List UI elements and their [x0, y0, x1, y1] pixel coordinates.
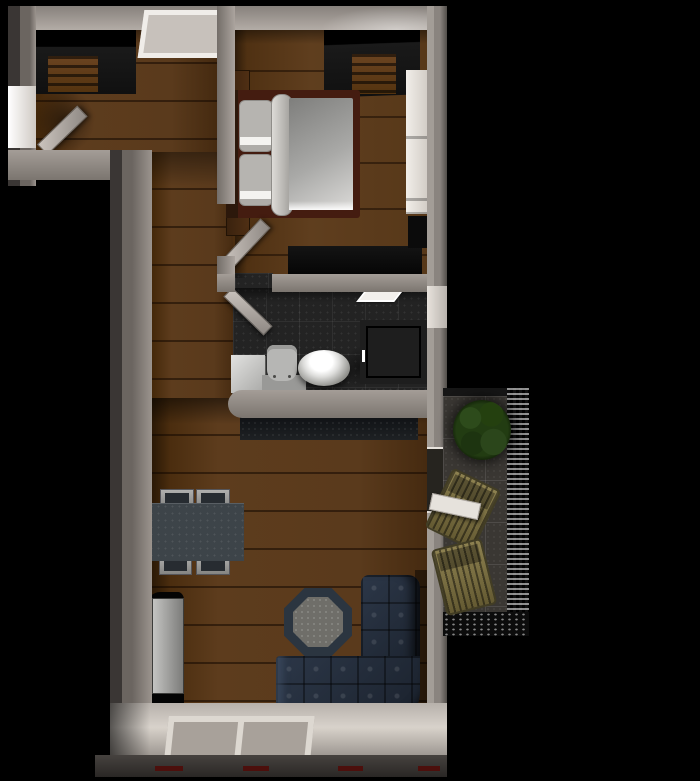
floorplan-render — [0, 0, 700, 781]
double-bed — [226, 90, 360, 218]
decor-dash — [243, 766, 269, 771]
bed-duvet — [289, 98, 353, 210]
window-icon — [8, 86, 36, 148]
shower-handle — [362, 350, 365, 362]
decor-dash — [338, 766, 363, 771]
decor-dash — [418, 766, 440, 771]
shower-cabin — [360, 320, 427, 384]
wall — [217, 6, 235, 204]
pillow — [239, 154, 273, 206]
bathroom-door-threshold — [235, 273, 273, 293]
decor-dash — [155, 766, 183, 771]
octagon-coffee-table — [284, 588, 352, 656]
dining-table — [148, 503, 244, 561]
low-dresser — [288, 246, 422, 276]
window-icon — [427, 286, 447, 328]
wall-outer-edge — [95, 755, 447, 777]
wall — [272, 274, 447, 292]
toilet-icon — [267, 345, 297, 381]
balcony-railing — [443, 612, 529, 636]
wall — [228, 390, 447, 418]
sink-cabinet — [231, 355, 265, 393]
wardrobe-shelves — [48, 56, 98, 92]
wall — [110, 150, 152, 722]
tv-screen — [152, 598, 184, 694]
wall — [217, 274, 235, 292]
wardrobe-shelves — [352, 54, 396, 94]
pillow — [239, 100, 273, 152]
wash-bowl — [298, 350, 350, 386]
plant-icon — [453, 400, 511, 460]
